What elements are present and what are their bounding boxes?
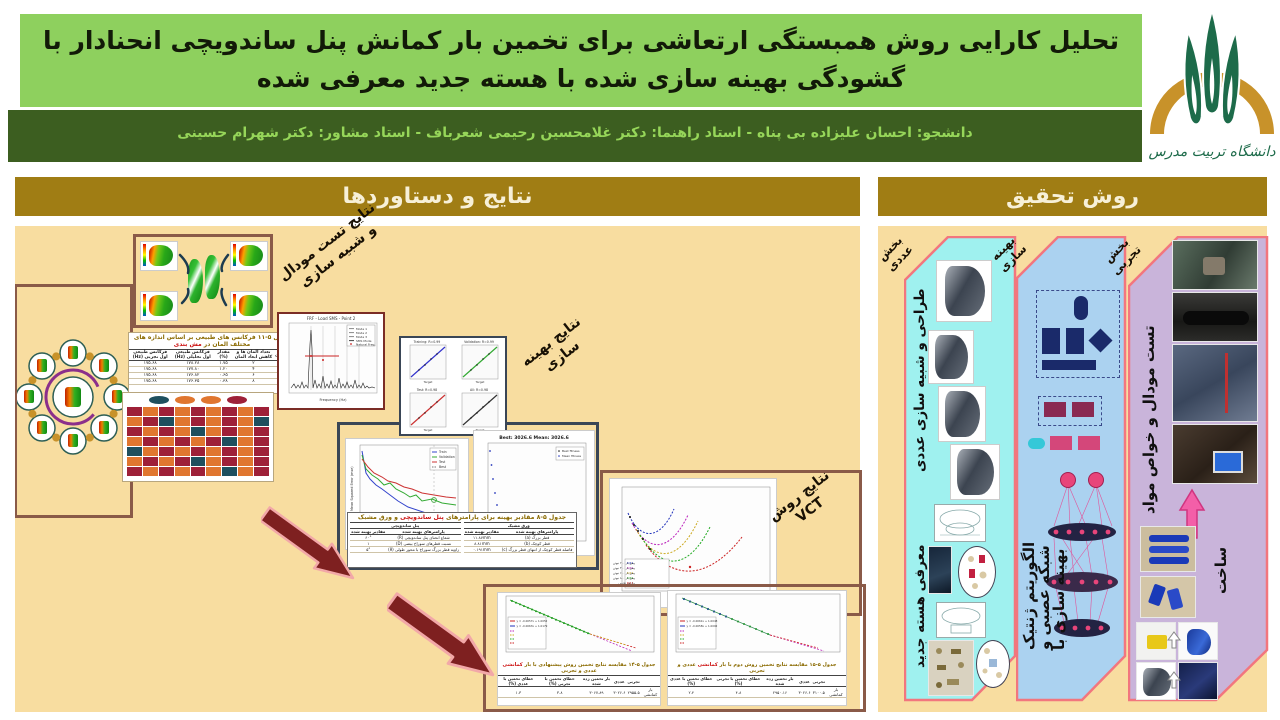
method-header-label: روش تحقیق [1006, 184, 1139, 209]
white-up-arrow [1166, 630, 1182, 650]
flowchart-box-pink [1050, 436, 1072, 450]
center-specimen [65, 387, 81, 407]
heatmap-cell [222, 457, 237, 466]
heatmap-cell [143, 467, 158, 476]
svg-text:پیش بار ۸۰۰ نیوتن: پیش بار ۸۰۰ نیوتن [613, 576, 635, 580]
byline-text: دانشجو: احسان علیزاده بی پناه - استاد را… [177, 125, 972, 141]
heatmap-cell [206, 467, 221, 476]
heatmap-cell [175, 437, 190, 446]
heatmap-legend [123, 393, 273, 407]
core-parts-photo [928, 640, 974, 696]
svg-text:Validation: Validation [439, 455, 455, 459]
vct-left-panel: y = -0.0057x + 1.0052 y = -0.0063x + 1.0… [497, 592, 661, 706]
heatmap-cell [159, 407, 174, 416]
heatmap-cell [222, 417, 237, 426]
heatmap-cell [127, 447, 142, 456]
heatmap-cell [127, 437, 142, 446]
table-row: فاصله قطر کوچک از انتهای قطر بزرگ (c)۰.۱… [464, 547, 575, 553]
table-row: شعاع انحنای پنل ساندویچی (R)۶۰° [350, 535, 461, 541]
photo-vacuum-bagging [1178, 662, 1218, 700]
poster-root: تحلیل کارایی روش همبستگی ارتعاشی برای تخ… [0, 0, 1280, 720]
heatmap-cell [206, 457, 221, 466]
heatmap-cell [206, 437, 221, 446]
heatmap-cell [254, 427, 269, 436]
heatmap-cell [143, 427, 158, 436]
flowchart-start-pill [1028, 438, 1045, 449]
svg-text:پیش بار ۴۰۰ نیوتن: پیش بار ۴۰۰ نیوتن [613, 566, 635, 570]
modal-cluster-frame [133, 234, 273, 328]
heatmap-cell [238, 447, 253, 456]
flowchart-box [1042, 360, 1096, 370]
heatmap-cell [159, 457, 174, 466]
svg-text:Target: Target [423, 428, 434, 432]
table-row: نسبت قطرهای سوراخ بیضی (D)۱ [350, 541, 461, 547]
heatmap-cell [143, 407, 158, 416]
heatmap-cell [206, 427, 221, 436]
mesh-table: بارگذاریتعداد المان ها و کاهش ابعاد الما… [129, 349, 295, 385]
heatmap-legend-chip [149, 396, 169, 404]
caption-highlight: مش بندی [174, 341, 202, 348]
heatmap-cell [127, 417, 142, 426]
heatmap-cell [238, 407, 253, 416]
vct-right-table: تجربیعددیبار تخمین زده شدهخطای تخمین با … [668, 675, 846, 698]
svg-text:Target: Target [423, 380, 434, 384]
heatmap-cell [254, 467, 269, 476]
opt-table-panel: جدول ۵-۸ مقادیر بهینه برای پارامترهای پن… [347, 512, 577, 568]
heatmap-legend-chip [227, 396, 247, 404]
svg-text:Test: R=0.98: Test: R=0.98 [416, 388, 437, 392]
heatmap-cell [238, 457, 253, 466]
results-section-header: نتایج و دستاوردها [15, 177, 860, 216]
label-optim-line3: الگوریتم ژنتیک [1020, 542, 1038, 650]
svg-text:Test: Test [438, 460, 446, 464]
opt-table-caption: جدول ۵-۸ مقادیر بهینه برای پارامترهای پن… [348, 513, 576, 522]
svg-text:Natural Freq.: Natural Freq. [356, 342, 375, 346]
white-up-arrow [1166, 670, 1182, 690]
vct-left-caption: جدول ۵-۱۴ مقایسه نتایج تخمین روش پیشنهاد… [498, 661, 660, 675]
flowchart-box-pink [1078, 436, 1100, 450]
table-row: بار کمانشی۳۱۰۰.۵۳۰۲۶.۶۲۹۵۰.۱۶۴.۸۲.۴ [668, 687, 846, 698]
frf-chart: FRF - Load SMS - Point 2 Mode 1 Mode 2 M… [279, 314, 383, 408]
frf-chart-panel: FRF - Load SMS - Point 2 Mode 1 Mode 2 M… [277, 312, 385, 410]
svg-text:y = -0.0063x + 1.0179: y = -0.0063x + 1.0179 [517, 624, 548, 628]
heatmap-cell [127, 467, 142, 476]
heatmap-legend-chip [201, 396, 221, 404]
vct-right-plot: y = -0.0061x + 1.0048 y = -0.0058x + 1.0… [668, 591, 846, 657]
label-fabrication: ساخت [1212, 547, 1230, 594]
heatmap-cell [143, 457, 158, 466]
svg-text:y = -0.0057x + 1.0052: y = -0.0057x + 1.0052 [517, 619, 548, 623]
photo-tensile-specimens-1 [1140, 526, 1196, 572]
svg-text:y = -0.0058x + 1.0092: y = -0.0058x + 1.0092 [687, 624, 718, 628]
mse-ylabel: Mean Squared Error (mse) [350, 466, 354, 511]
svg-text:Target: Target [475, 380, 486, 384]
heatmap-cell [222, 467, 237, 476]
shell-model-image [936, 260, 992, 322]
heatmap-cell [175, 417, 190, 426]
svg-text:پیش بار ۲۰۰ نیوتن: پیش بار ۲۰۰ نیوتن [613, 561, 635, 565]
heatmap-cell [254, 447, 269, 456]
heatmap-cell [191, 467, 206, 476]
heatmap-cell [191, 447, 206, 456]
photo-tensile-specimens-2 [1140, 576, 1196, 618]
photo-blue-shell [1178, 622, 1218, 660]
specimen-ring-frame [15, 284, 133, 518]
heatmap-cell [159, 417, 174, 426]
heatmap-panel [122, 392, 274, 482]
heatmap-cell [175, 447, 190, 456]
label-new-core: معرفی هسته جدید [912, 545, 928, 668]
svg-text:Best: Best [439, 465, 447, 469]
heatmap-legend-chip [175, 396, 195, 404]
core-drawing-1 [934, 504, 986, 542]
core-parts-oval-1 [958, 546, 996, 598]
heatmap-cell [254, 407, 269, 416]
heatmap-cell [175, 467, 190, 476]
opt-table-mesh-plate: ورق مشبک پارامترهای بهینه شدهمقادیر بهین… [464, 522, 575, 553]
heatmap-cell [222, 447, 237, 456]
heatmap-cell [143, 437, 158, 446]
table-row: ۲۵۰۸۰.۳۸۱۷۶.۳۵۱۷۵.۶۸ [129, 379, 295, 385]
caption-text: جدول ۵-۱۱ فرکانس های طبیعی بر اساس انداز… [134, 334, 290, 348]
heatmap-cell [127, 457, 142, 466]
heatmap-cell [143, 447, 158, 456]
svg-text:Mean fitness: Mean fitness [562, 454, 582, 458]
method-section-header: روش تحقیق [878, 177, 1267, 216]
svg-text:y = -0.0061x + 1.0048: y = -0.0061x + 1.0048 [687, 619, 718, 623]
logo-text: دانشگاه تربیت مدرس [1149, 143, 1276, 160]
regression-plots: Training: R=0.99 Validation: R=0.99 Test… [401, 338, 505, 434]
flowchart-box-maroon [1044, 402, 1066, 417]
heatmap-cell [206, 447, 221, 456]
photo-composite-shell [1172, 292, 1258, 342]
poster-title-line2: گشودگی بهینه سازی شده با هسته جدید معرفی… [20, 60, 1142, 98]
poster-title-line1: تحلیل کارایی روش همبستگی ارتعاشی برای تخ… [20, 22, 1142, 60]
flowchart-start-node [1074, 296, 1088, 320]
heatmap-cell [175, 427, 190, 436]
university-logo: دانشگاه تربیت مدرس [1148, 2, 1276, 168]
heatmap-cell [191, 417, 206, 426]
shell-model-image [928, 330, 974, 384]
heatmap-cell [254, 437, 269, 446]
flowchart-box [1066, 328, 1084, 354]
heatmap-cell [238, 467, 253, 476]
flow-arrow-2 [387, 592, 502, 687]
photo-modal-test-rig [1172, 344, 1258, 422]
regression-panel: Training: R=0.99 Validation: R=0.99 Test… [399, 336, 507, 436]
heatmap-cell [238, 417, 253, 426]
logo-trees [1180, 10, 1243, 125]
heatmap-cell [191, 437, 206, 446]
svg-text:Best fitness: Best fitness [562, 449, 580, 453]
heatmap-cell [159, 427, 174, 436]
byline-bar: دانشجو: احسان علیزاده بی پناه - استاد را… [8, 110, 1142, 162]
heatmap-cell [175, 407, 190, 416]
specimen-ring-diagram [17, 287, 129, 515]
label-numeric-design: طراحی و شبیه سازی عددی [912, 288, 928, 472]
heatmap-cell [254, 457, 269, 466]
heatmap-cell [159, 447, 174, 456]
vct-right-panel: y = -0.0061x + 1.0048 y = -0.0058x + 1.0… [667, 590, 847, 706]
core-parts-oval-2 [976, 640, 1010, 688]
mesh-table-caption: جدول ۵-۱۱ فرکانس های طبیعی بر اساس انداز… [129, 333, 295, 349]
frf-title: FRF - Load SMS - Point 2 [307, 316, 356, 321]
vct-left-table: تجربیعددیبار تخمین زده شدهخطای تخمین با … [498, 675, 660, 698]
heatmap-cell [238, 427, 253, 436]
heatmap-cell [127, 427, 142, 436]
heatmap-cell [238, 437, 253, 446]
label-optimization-results: نتایج بهینه سازی [507, 305, 607, 394]
vct-left-plot: y = -0.0057x + 1.0052 y = -0.0063x + 1.0… [498, 593, 660, 657]
photo-lathe-machine [1172, 240, 1258, 290]
comparison-arrows [136, 237, 270, 325]
core-drawing-2 [936, 602, 986, 638]
shell-model-image [950, 444, 1000, 500]
svg-text:All: R=0.98: All: R=0.98 [470, 388, 488, 392]
poster-title: تحلیل کارایی روش همبستگی ارتعاشی برای تخ… [20, 14, 1142, 107]
ga-title: Best: 3026.6 Mean: 3026.6 [499, 435, 569, 441]
label-modal-material: تست مودال و خواص مواد [1140, 325, 1158, 514]
heatmap-cell [254, 417, 269, 426]
mesh-table-panel: جدول ۵-۱۱ فرکانس های طبیعی بر اساس انداز… [128, 332, 296, 394]
svg-text:Training: R=0.99: Training: R=0.99 [413, 340, 441, 344]
core-photo-dark [928, 546, 952, 594]
heatmap-cell [191, 427, 206, 436]
vct-right-caption: جدول ۵-۱۵ مقایسه نتایج تخمین روش دوم با … [668, 661, 846, 675]
heatmap-cell [175, 457, 190, 466]
heatmap-cell [159, 467, 174, 476]
heatmap-cell [206, 417, 221, 426]
heatmap-cell [206, 407, 221, 416]
table-row: زاویه قطر بزرگ سوراخ با محور طولی (θ)۵° [350, 547, 461, 553]
method-content-area: بخش عددی طراحی و شبیه سازی عددی معرفی هس… [878, 226, 1267, 712]
frf-xlabel: Frequency (Hz) [319, 398, 347, 402]
results-content-area: جدول ۵-۱۱ فرکانس های طبیعی بر اساس انداز… [15, 226, 860, 712]
photo-lab-setup [1172, 424, 1258, 484]
heatmap-cell [143, 417, 158, 426]
table-row: بار کمانشی۲۹۵۵.۵۳۰۲۶.۶۳۰۶۷.۸۹۳.۸۱.۳ [498, 687, 660, 698]
heatmap-cell [127, 407, 142, 416]
shell-model-image [938, 386, 986, 442]
heatmap-cell [222, 437, 237, 446]
flowchart-box [1042, 328, 1060, 354]
svg-text:Validation: R=0.99: Validation: R=0.99 [464, 340, 494, 344]
heatmap-cell [191, 457, 206, 466]
heatmap-cell [222, 427, 237, 436]
heatmap-cell [159, 437, 174, 446]
flow-arrow-1 [261, 506, 361, 586]
svg-text:Train: Train [438, 450, 447, 454]
flowchart-box-maroon [1072, 402, 1094, 417]
opt-table-sandwich-panel: پنل ساندویچی پارامترهای بهینه شدهمقادیر … [350, 522, 461, 553]
heatmap-grid [123, 407, 273, 480]
svg-text:پیش بار ۶۰۰ نیوتن: پیش بار ۶۰۰ نیوتن [613, 571, 635, 575]
heatmap-cell [191, 407, 206, 416]
heatmap-cell [222, 407, 237, 416]
